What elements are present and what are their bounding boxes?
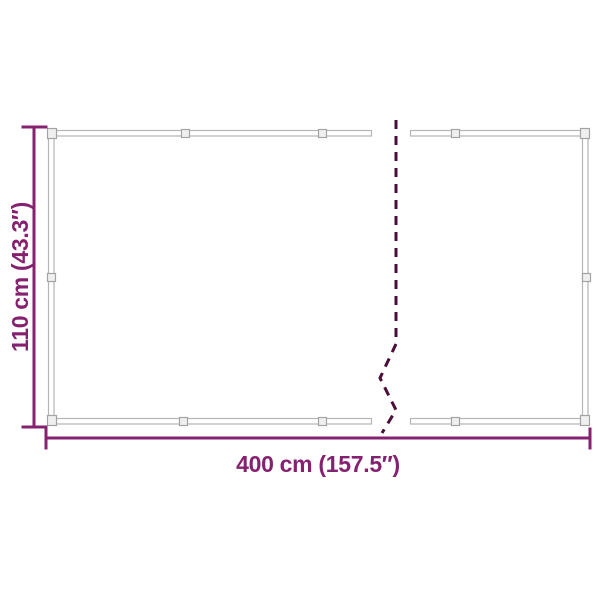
grommet-corner-top-right bbox=[581, 129, 590, 139]
grommet-left-middle bbox=[48, 274, 56, 282]
grommet-bottom bbox=[319, 418, 327, 426]
screen-frame bbox=[49, 131, 589, 425]
dimension-diagram: 400 cm (157.5″) 110 cm (43.3″) bbox=[0, 0, 600, 600]
frame-top-rail-right bbox=[411, 131, 588, 137]
width-dimension-line bbox=[46, 429, 590, 448]
height-dimension-label: 110 cm (43.3″) bbox=[5, 127, 35, 427]
grommet-corner-bottom-right bbox=[581, 416, 590, 426]
grommet-top bbox=[319, 130, 327, 138]
grommet-bottom bbox=[452, 418, 460, 426]
frame-bottom-rail-right bbox=[411, 419, 588, 425]
grommet-top bbox=[452, 130, 460, 138]
grommet-right-middle bbox=[583, 274, 591, 282]
break-line bbox=[380, 120, 396, 433]
grommet-bottom bbox=[180, 418, 188, 426]
screen-frame-drawing bbox=[0, 0, 600, 600]
grommet-corner-top-left bbox=[48, 129, 57, 139]
width-dimension-label: 400 cm (157.5″) bbox=[46, 449, 590, 479]
grommet-corner-bottom-left bbox=[48, 416, 57, 426]
grommets bbox=[48, 129, 591, 426]
grommet-top bbox=[182, 130, 190, 138]
